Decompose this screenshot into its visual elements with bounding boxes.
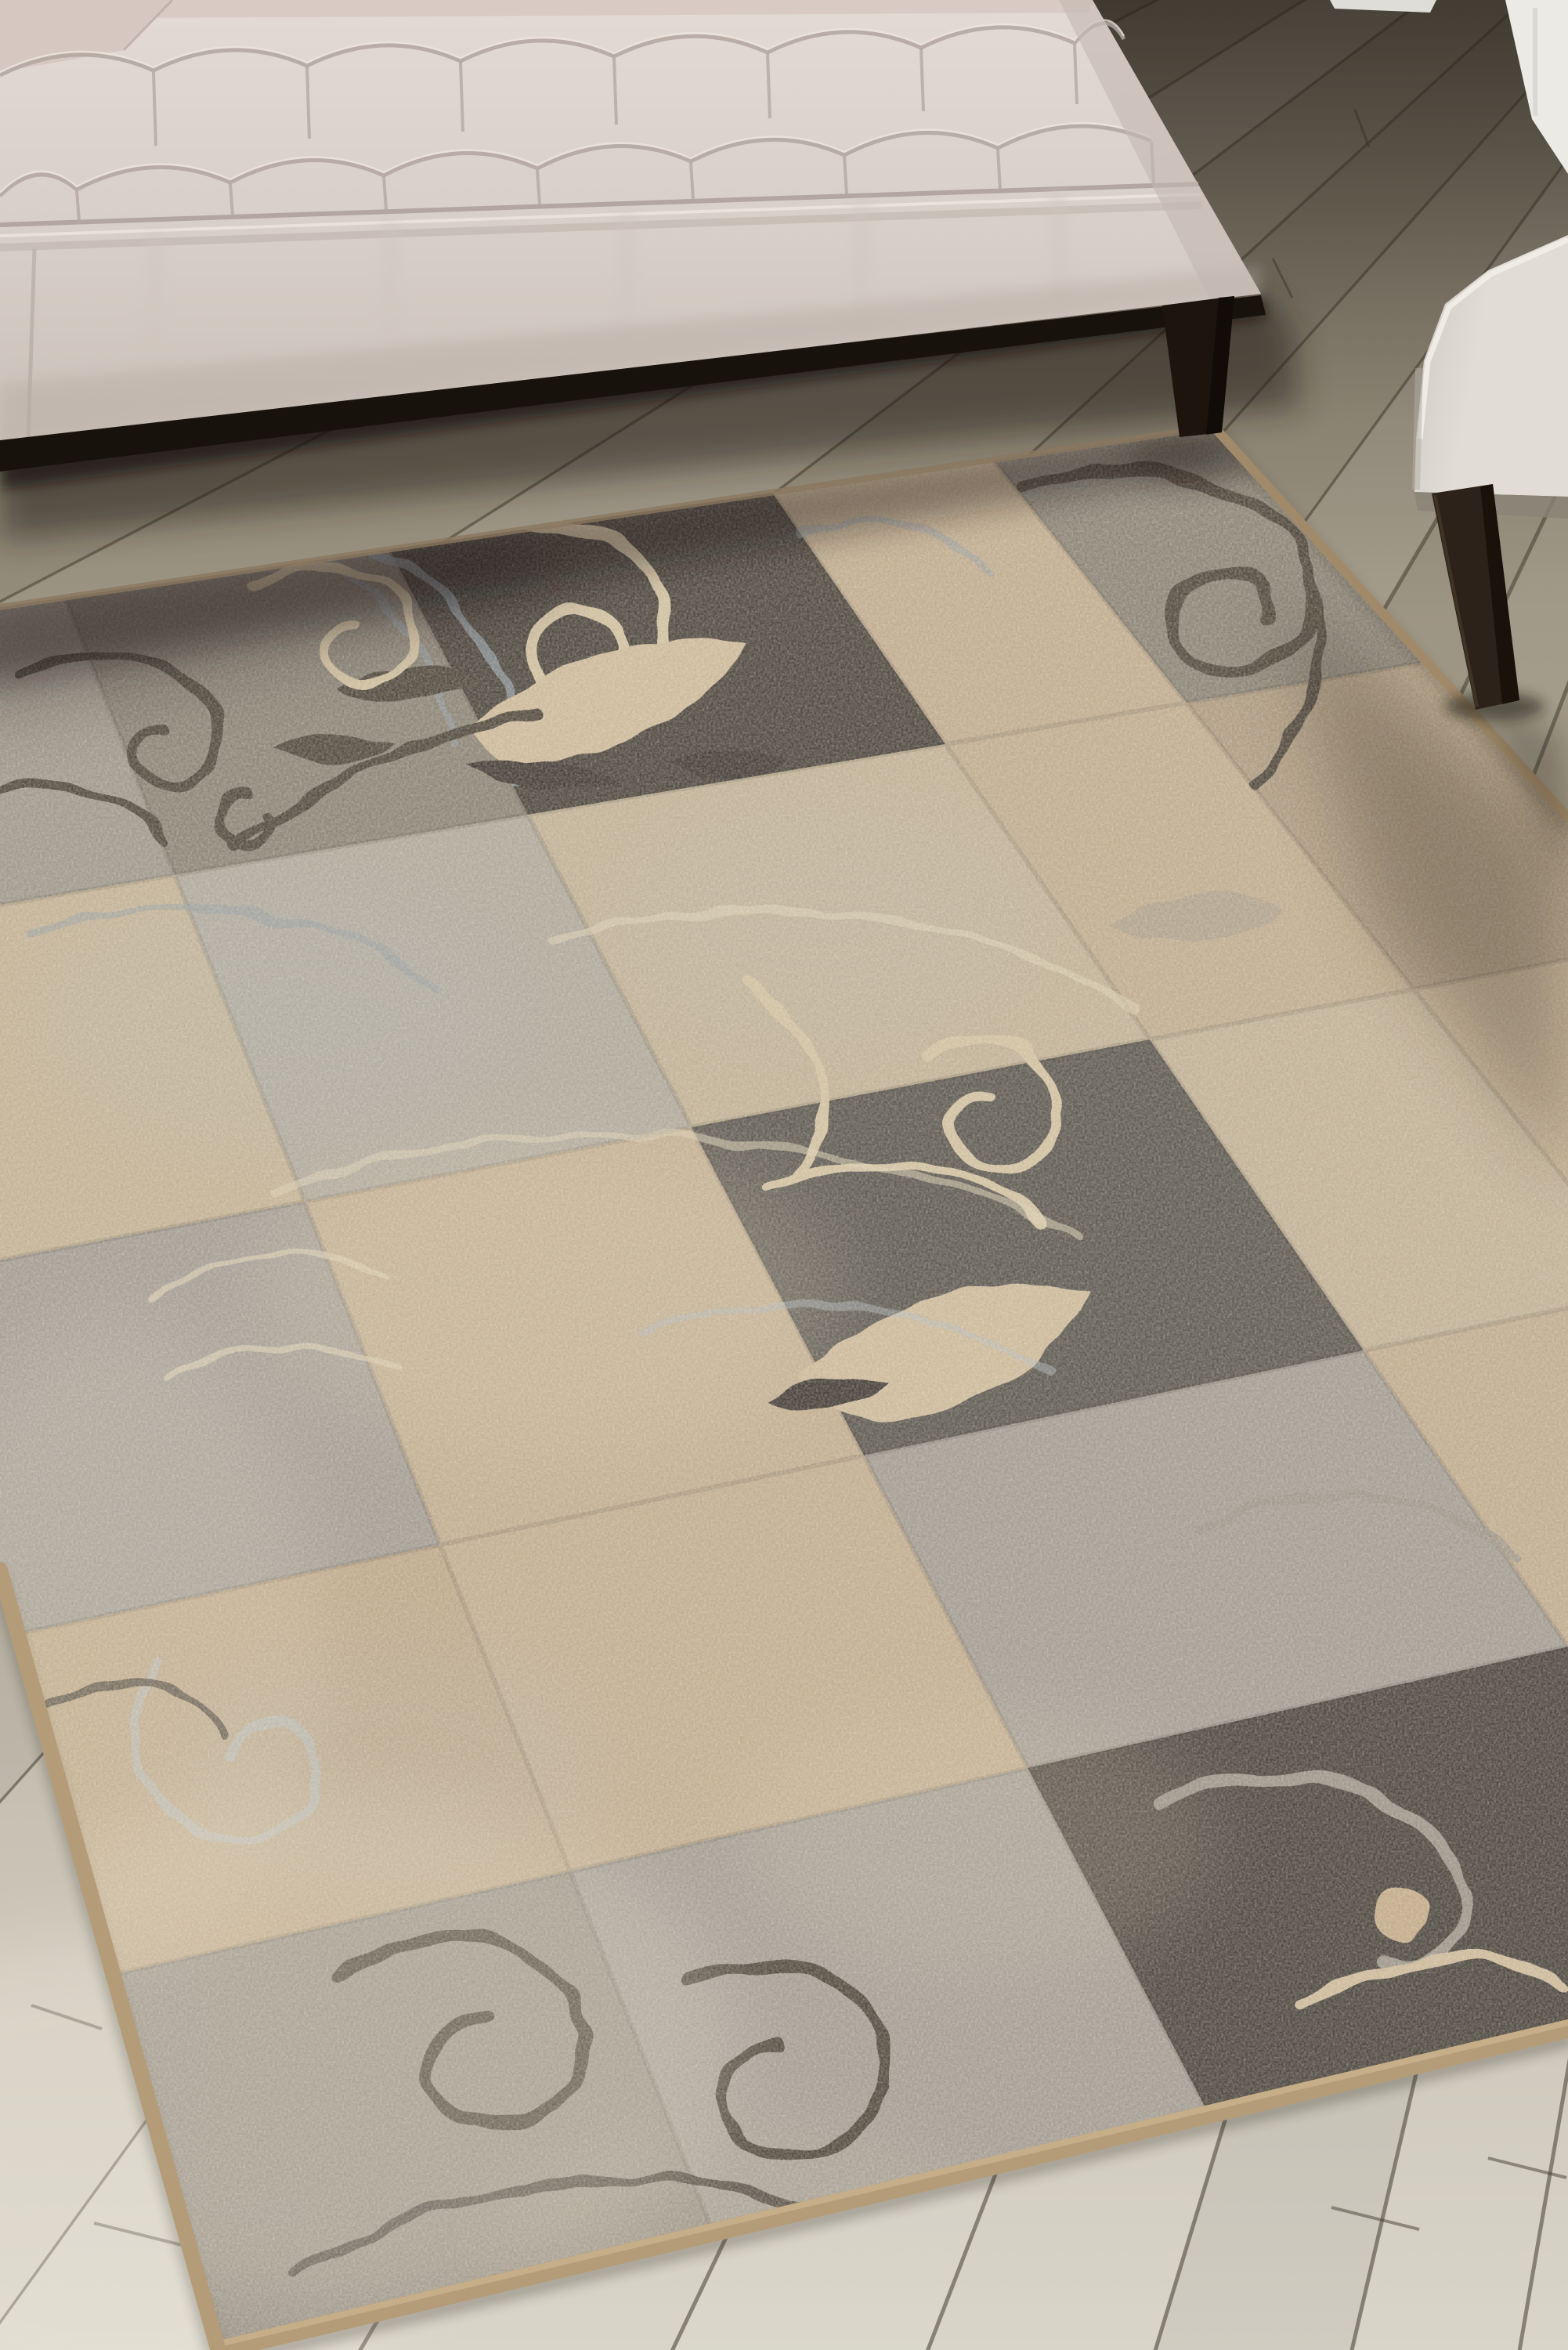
patchwork-area-rug: Distressed patchwork area rug of beige, … [0, 392, 1568, 2350]
chair-side-shade [1416, 368, 1419, 490]
room-photo: Gray-washed oak plank floor laid diagona… [0, 0, 1568, 2350]
scene-canvas: Gray-washed oak plank floor laid diagona… [0, 0, 1568, 2350]
